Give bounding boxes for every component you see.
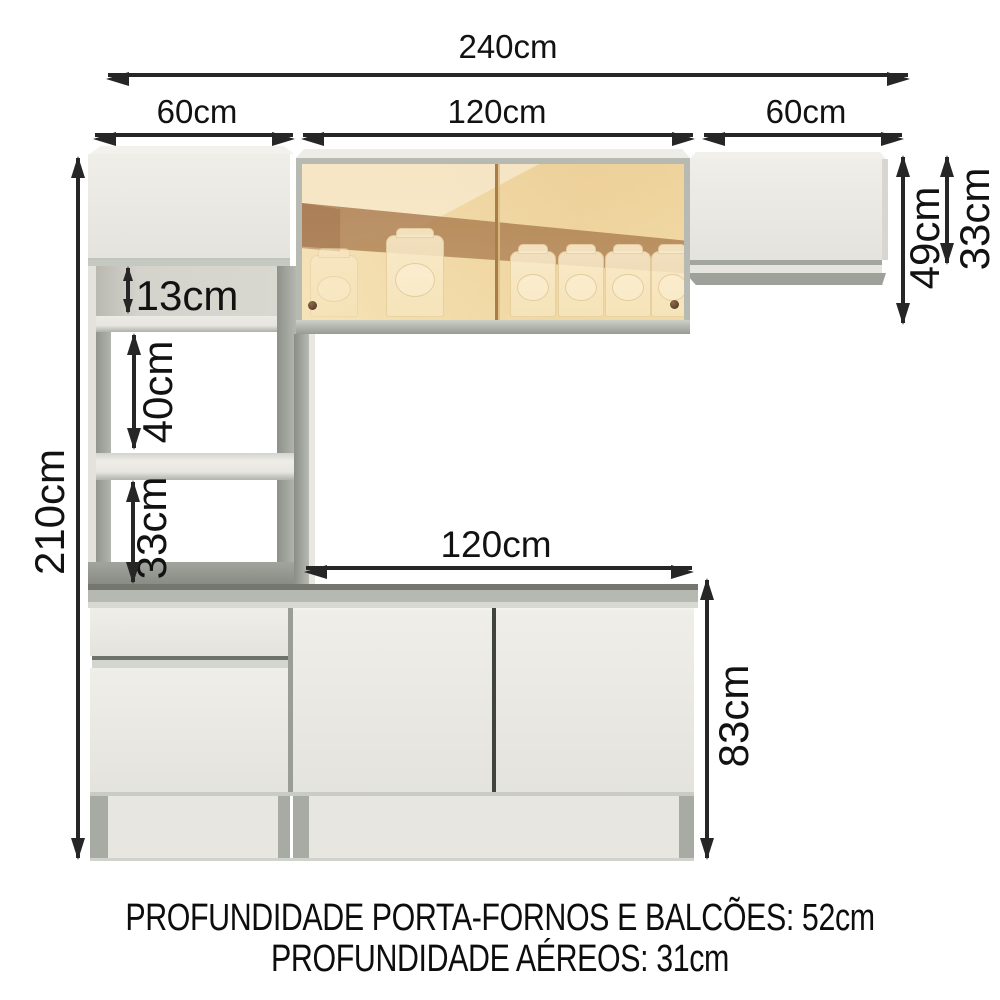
dim-counter-width-arrow [306, 566, 692, 570]
dim-lower-niche-arrow [131, 482, 135, 582]
main-plinth-foot-left [293, 796, 309, 858]
mid-post-edge [309, 334, 315, 586]
dim-center-width-arrow [303, 133, 693, 137]
countertop-body [88, 590, 698, 602]
right-cabinet-side-edge [882, 159, 888, 260]
dim-right-width-arrow [704, 133, 902, 137]
dim-right-width-label: 60cm [766, 93, 847, 131]
dim-glass-height-label: 49cm [901, 187, 949, 290]
glass-tint-overlay [302, 164, 684, 320]
dim-total-height-label: 210cm [26, 449, 74, 575]
dim-total-width-label: 240cm [458, 28, 557, 66]
dim-center-width-label: 120cm [447, 93, 546, 131]
footer-depth-line2: PROFUNDIDADE AÉREOS: 31cm [100, 938, 900, 981]
base-ground-shadow [90, 858, 694, 861]
dim-glass-height-arrow [901, 157, 905, 323]
dim-left-width-label: 60cm [157, 93, 238, 131]
left-plinth-foot-right [278, 796, 290, 858]
right-cabinet-bottom-band [690, 273, 886, 285]
glass-door-right-knob [670, 300, 679, 309]
dim-right-aerial-height-arrow [945, 157, 949, 263]
main-plinth-foot-right [679, 796, 694, 858]
left-plinth-board [108, 796, 278, 858]
right-cabinet-top-bevel [690, 152, 886, 159]
dim-left-width-arrow [95, 133, 293, 137]
glass-door-left-knob [308, 301, 317, 310]
glass-cabinet-bottom-frame [296, 320, 690, 334]
glass-cabinet-pane [302, 164, 684, 320]
dim-total-width-arrow [108, 73, 908, 77]
right-cabinet-lower-strip [690, 265, 882, 273]
left-base-drawer [90, 608, 288, 656]
glass-cabinet-top-slab [296, 149, 690, 158]
main-plinth-board [309, 796, 679, 858]
dim-right-aerial-height-label: 33cm [951, 168, 999, 271]
dim-top-niche-arrow [126, 268, 130, 312]
tower-top-bevel [88, 146, 294, 154]
right-cabinet-door [690, 159, 882, 260]
left-base-door [90, 668, 288, 792]
mid-post [294, 334, 309, 586]
dim-oven-niche-label: 40cm [134, 341, 182, 444]
left-plinth-foot-left [90, 796, 108, 858]
footer-depth-line1: PROFUNDIDADE PORTA-FORNOS E BALCÕES: 52c… [100, 897, 900, 940]
dim-base-height-arrow [705, 580, 709, 858]
dim-oven-niche-arrow [132, 335, 136, 448]
tower-top-door [88, 154, 290, 260]
dim-total-height-arrow [76, 158, 80, 858]
left-base-drawer-groove-light [92, 660, 288, 668]
tower-shelf [96, 453, 296, 480]
tower-bottom-band [88, 562, 296, 586]
tower-left-outer-edge [88, 266, 96, 588]
main-base-right-door [496, 608, 694, 794]
kitchen-dimensions-diagram: 240cm 60cm 120cm 60cm 210cm 49cm 33cm 13… [0, 0, 1000, 1000]
glass-door-divider-highlight [498, 164, 500, 320]
main-base-left-door [293, 608, 492, 794]
dim-counter-width-label: 120cm [440, 524, 551, 566]
dim-base-height-label: 83cm [710, 665, 758, 768]
dim-top-niche-label: 13cm [136, 272, 239, 320]
